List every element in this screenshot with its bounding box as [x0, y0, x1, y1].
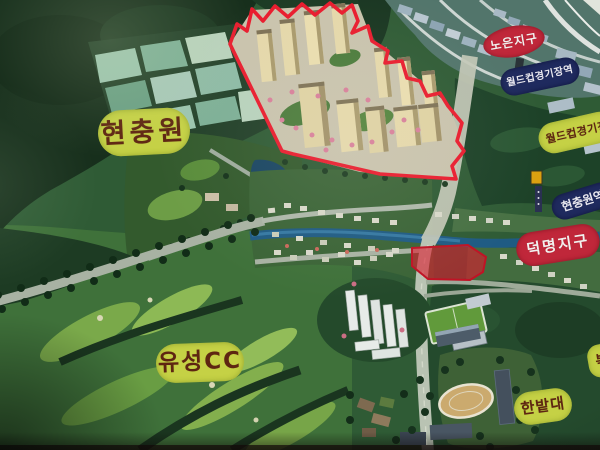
map-photo-stage: 현충원 유성CC 노은지구 월드컵경기장역 월드컵경기장 현충원역 덕명지구 한…: [0, 0, 600, 450]
map-artwork: [0, 0, 600, 450]
red-zone-polygon: [412, 245, 486, 280]
label-hyeonchungwon: 현충원: [97, 107, 191, 158]
white-apartments: [317, 278, 433, 362]
photo-bottom-edge: [0, 445, 600, 450]
label-yuseong-cc: 유성CC: [155, 341, 244, 383]
